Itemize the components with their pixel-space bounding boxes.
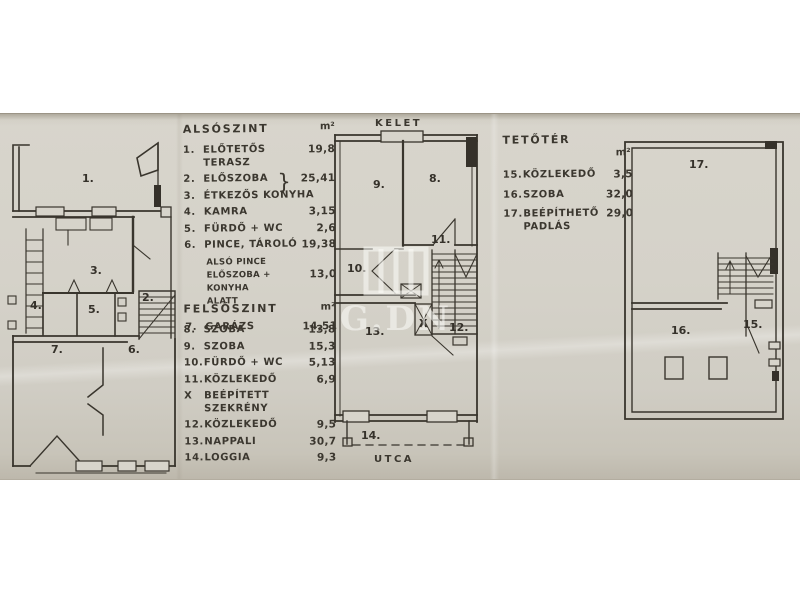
room-list-row: 4. KAMRA 3,15 [184,205,336,219]
room-number: 9. [373,178,385,191]
room-number: 2. [142,291,154,304]
watermark-logo-icon [358,244,434,298]
room-list-row: ELŐSZOBA + KONYHA 13,0 [206,268,336,295]
room-number: 17. [689,158,709,171]
ground-floor-plan: 1. 3. 2. 4. 5. 7. 6. [6,133,178,475]
room-list-row: ALSÓ PINCE [206,255,336,269]
room-list-row: 17. BEÉPÍTHETŐPADLÁS 29,0 [503,207,633,234]
room-list-row: 8. SZOBA 13,8 [184,323,336,337]
room-number: 15. [743,318,763,331]
room-list-row: 11. KÖZLEKEDŐ 6,9 [184,373,336,387]
room-list-row: 14. LOGGIA 9,3 [184,451,336,465]
room-list-row: X BEÉPÍTETT SZEKRÉNY [184,389,336,415]
roof-window [665,357,683,379]
room-list-row: 16. SZOBA 32,0 [503,188,633,202]
room-list-row: 15. KÖZLEKEDŐ 3,5 [503,168,633,182]
room-number: 6. [128,343,140,356]
street-label: UTCA [374,454,414,465]
room-list-row: 9. SZOBA 15,3 [184,340,336,354]
tetoter-room-list: TETŐTÉR m² 15. KÖZLEKEDŐ 3,5 16. SZOBA 3… [502,132,633,241]
room-number: 8. [429,172,441,185]
room-list-row: 13. NAPPALI 30,7 [184,435,336,449]
room-number: 5. [88,303,100,316]
alsoszint-unit: m² [320,121,335,132]
room-number: 3. [90,264,102,277]
room-number: 16. [671,324,691,337]
tetoter-title: TETŐTÉR [502,133,570,147]
room-list-row: 6. PINCE, TÁROLÓ 19,38 [184,238,336,252]
felsoszint-room-list: FELSŐSZINT m² 8. SZOBA 13,8 9. SZOBA 15,… [183,301,336,469]
roof-window [709,357,727,379]
attic-floor-plan: 17. 16. 15. [615,128,795,428]
watermark: G.DN [336,244,456,336]
watermark-text: G.DN [336,302,456,336]
room-list-row: 5. FÜRDŐ + WC 2,6 [184,222,336,236]
north-arrow [137,143,161,207]
room-number: 7. [51,343,63,356]
room-number: 14. [361,429,381,442]
room-list-row: 3. ÉTKEZŐS KONYHA [184,189,336,203]
room-number: 1. [82,172,94,185]
room-list-row: 1. ELŐTETŐS TERASZ 19,8 [183,143,335,170]
room-list-row: 2. ELŐSZOBA } 25,41 [183,172,335,186]
tetoter-unit: m² [503,147,631,160]
room-number: 4. [30,299,42,312]
felsoszint-unit: m² [321,301,336,312]
room-list-row: 12. KÖZLEKEDŐ 9,5 [184,418,336,432]
alsoszint-title: ALSÓSZINT [183,122,269,136]
east-label: KELET [375,118,422,129]
felsoszint-title: FELSŐSZINT [183,302,277,316]
room-list-row: 10. FÜRDŐ + WC 5,13 [184,356,336,370]
